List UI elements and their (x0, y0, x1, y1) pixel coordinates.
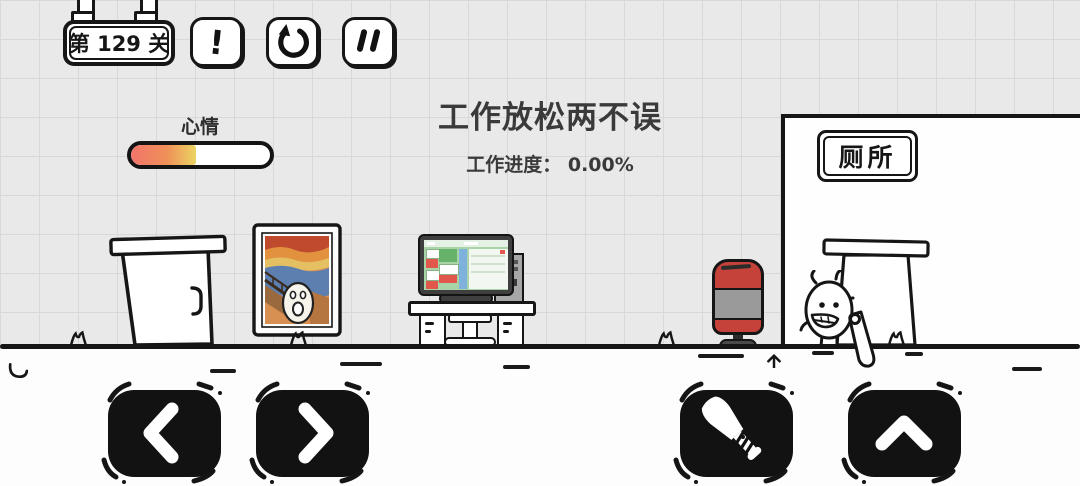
toilet-sign: 厕所 (817, 130, 918, 182)
ground-dash (1012, 367, 1042, 371)
ground-dash (210, 369, 236, 373)
ground-doodle (8, 362, 28, 380)
screen-cell (426, 249, 440, 259)
drawer-handle (503, 330, 509, 333)
screen-cell (427, 242, 435, 245)
scream-painting[interactable] (252, 223, 342, 337)
jump-button[interactable] (848, 390, 961, 477)
screen-cell (426, 259, 438, 268)
use-bat-button[interactable] (680, 390, 793, 477)
drawer-handle (503, 322, 512, 325)
move-left-button[interactable] (108, 390, 221, 477)
office-door[interactable] (108, 234, 230, 346)
screen-cell (426, 270, 440, 281)
chevron-right-icon (256, 390, 369, 477)
level-badge-label: 第 129 关 (69, 26, 169, 60)
toilet-sign-label: 厕所 (823, 136, 912, 176)
screen-cell (439, 275, 457, 283)
grass-tuft (70, 330, 88, 345)
level-title-block: 工作放松两不误 工作进度： 0.00% (300, 92, 800, 177)
screen-cell (500, 250, 505, 254)
level-badge: 第 129 关 (63, 20, 175, 66)
work-progress-value: 0.00% (568, 154, 634, 176)
ground-dash (340, 362, 382, 366)
baseball-bat-icon (680, 390, 793, 477)
desk-right-drawer (497, 314, 524, 346)
game-screen: 第 129 关 ! 心情 工作放松两不误 工作进度： 0.00% 厕所 (0, 0, 1080, 486)
drawer-handle (425, 330, 431, 333)
ground-dash (698, 354, 744, 358)
screen-cell (426, 281, 438, 289)
restart-button[interactable] (266, 17, 319, 67)
exclamation-icon: ! (207, 25, 225, 59)
punching-bag-shade (721, 264, 751, 270)
chevron-left-icon (108, 390, 221, 477)
mood-bar (127, 141, 274, 169)
screen-line (471, 255, 505, 257)
ground-dash (503, 365, 530, 369)
punching-bag-body (712, 259, 764, 335)
screen-line (471, 263, 505, 265)
ground-line (0, 344, 1080, 349)
punching-bag-band (715, 288, 761, 320)
screen-column (459, 249, 467, 289)
hint-button[interactable]: ! (190, 17, 243, 67)
pause-button[interactable] (342, 17, 395, 67)
egg-character (792, 270, 892, 372)
ground-dash (905, 352, 923, 356)
screen-line (471, 271, 505, 273)
pause-icon (356, 29, 382, 56)
move-right-button[interactable] (256, 390, 369, 477)
desk-left-drawer (419, 314, 446, 346)
chevron-up-icon (848, 390, 961, 477)
screen-cell (439, 264, 459, 275)
grass-tuft (290, 330, 308, 345)
screen-cell (439, 249, 457, 262)
grass-tuft (658, 330, 676, 345)
restart-arrow-icon (274, 23, 312, 61)
monitor[interactable] (418, 234, 514, 296)
level-title: 工作放松两不误 (300, 92, 800, 137)
work-progress: 工作进度： 0.00% (300, 150, 800, 177)
mood-bar-fill (131, 145, 196, 165)
baseball-bat-held (850, 312, 874, 366)
drawer-handle (425, 322, 434, 325)
screen-cell (464, 242, 478, 245)
punching-bag[interactable] (712, 259, 766, 349)
grass-sprout (766, 350, 782, 368)
mood-label: 心情 (140, 112, 260, 139)
monitor-screen (424, 240, 508, 290)
work-progress-label: 工作进度： (466, 154, 561, 176)
